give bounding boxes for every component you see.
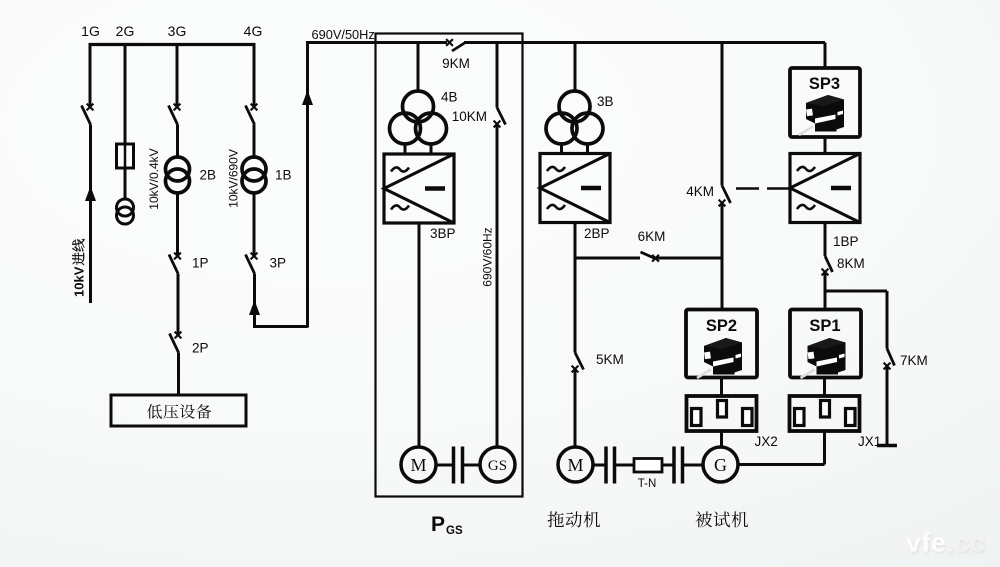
svg-text:JX2: JX2 bbox=[755, 434, 778, 449]
svg-text:8KM: 8KM bbox=[837, 256, 865, 271]
svg-text:2B: 2B bbox=[200, 168, 217, 183]
svg-text:10kV/0.4kV: 10kV/0.4kV bbox=[147, 148, 161, 209]
svg-text:SP3: SP3 bbox=[809, 75, 840, 93]
svg-text:SP1: SP1 bbox=[809, 317, 840, 335]
svg-text:3BP: 3BP bbox=[430, 226, 456, 241]
svg-text:2P: 2P bbox=[192, 341, 209, 356]
svg-text:4KM: 4KM bbox=[686, 184, 714, 199]
svg-text:GS: GS bbox=[446, 525, 463, 537]
svg-text:690V/50Hz: 690V/50Hz bbox=[312, 27, 375, 42]
svg-text:G: G bbox=[714, 455, 727, 475]
svg-text:1B: 1B bbox=[275, 168, 292, 183]
svg-text:2BP: 2BP bbox=[584, 226, 610, 241]
svg-text:3G: 3G bbox=[168, 23, 187, 39]
svg-text:JX1: JX1 bbox=[858, 434, 881, 449]
svg-text:10kV/690V: 10kV/690V bbox=[227, 149, 241, 208]
svg-text:M: M bbox=[410, 455, 426, 475]
svg-text:5KM: 5KM bbox=[596, 352, 624, 367]
svg-text:4B: 4B bbox=[441, 90, 458, 105]
svg-text:690V/60Hz: 690V/60Hz bbox=[481, 227, 495, 286]
svg-text:GS: GS bbox=[488, 458, 507, 474]
svg-text:4G: 4G bbox=[244, 23, 263, 39]
svg-text:vfe.cc: vfe.cc bbox=[906, 528, 986, 558]
svg-text:6KM: 6KM bbox=[638, 229, 666, 244]
svg-text:2G: 2G bbox=[116, 23, 135, 39]
svg-text:10KM: 10KM bbox=[452, 109, 487, 124]
svg-text:3P: 3P bbox=[270, 256, 287, 271]
svg-text:3B: 3B bbox=[597, 94, 614, 109]
svg-text:9KM: 9KM bbox=[442, 56, 470, 71]
svg-text:T-N: T-N bbox=[638, 478, 657, 490]
svg-text:SP2: SP2 bbox=[706, 317, 737, 335]
svg-text:1P: 1P bbox=[192, 256, 209, 271]
svg-text:1BP: 1BP bbox=[833, 234, 859, 249]
svg-text:1G: 1G bbox=[81, 23, 100, 39]
svg-text:10kV: 10kV bbox=[72, 266, 87, 297]
svg-text:7KM: 7KM bbox=[900, 353, 928, 368]
svg-text:M: M bbox=[567, 455, 583, 475]
svg-text:P: P bbox=[431, 513, 445, 536]
